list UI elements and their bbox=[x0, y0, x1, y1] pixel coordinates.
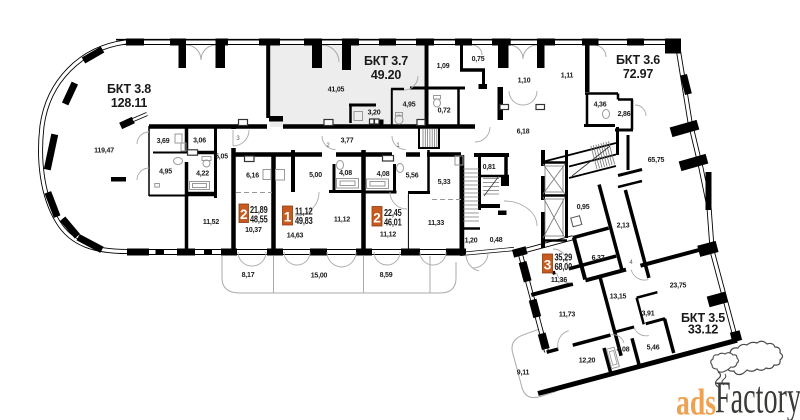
svg-text:49.20: 49.20 bbox=[371, 68, 402, 82]
svg-text:48,55: 48,55 bbox=[250, 213, 268, 225]
svg-text:9,11: 9,11 bbox=[517, 370, 530, 377]
svg-text:3,91: 3,91 bbox=[642, 311, 655, 318]
svg-text:0,75: 0,75 bbox=[472, 56, 485, 63]
svg-text:5,46: 5,46 bbox=[647, 345, 660, 352]
svg-text:11,12: 11,12 bbox=[380, 232, 396, 239]
svg-text:6,37: 6,37 bbox=[592, 255, 605, 262]
svg-text:0,72: 0,72 bbox=[438, 108, 451, 115]
svg-text:8,59: 8,59 bbox=[380, 272, 393, 279]
svg-text:3,69: 3,69 bbox=[157, 138, 170, 145]
svg-text:72.97: 72.97 bbox=[623, 67, 654, 81]
svg-text:1,10: 1,10 bbox=[518, 78, 531, 85]
svg-text:БКТ 3.6: БКТ 3.6 bbox=[616, 53, 660, 67]
svg-text:4,08: 4,08 bbox=[377, 171, 390, 178]
svg-text:4,22: 4,22 bbox=[196, 170, 209, 177]
svg-text:2,13: 2,13 bbox=[617, 223, 630, 230]
svg-text:1,11: 1,11 bbox=[561, 73, 574, 80]
svg-text:128.11: 128.11 bbox=[111, 96, 148, 110]
svg-text:4,08: 4,08 bbox=[339, 170, 352, 177]
svg-text:41,05: 41,05 bbox=[328, 87, 345, 94]
svg-text:6,18: 6,18 bbox=[517, 129, 530, 136]
svg-text:3: 3 bbox=[544, 258, 552, 273]
svg-text:15,00: 15,00 bbox=[311, 273, 328, 280]
svg-text:3,20: 3,20 bbox=[368, 110, 381, 117]
svg-text:11,52: 11,52 bbox=[203, 219, 219, 226]
svg-text:0,81: 0,81 bbox=[483, 164, 496, 171]
svg-text:119,47: 119,47 bbox=[94, 148, 114, 155]
svg-text:11,33: 11,33 bbox=[428, 220, 444, 227]
svg-text:4,95: 4,95 bbox=[159, 169, 172, 176]
svg-text:БКТ 3.8: БКТ 3.8 bbox=[107, 82, 151, 96]
svg-text:БКТ 3.7: БКТ 3.7 bbox=[364, 54, 408, 68]
svg-text:33.12: 33.12 bbox=[688, 323, 719, 337]
svg-text:14,63: 14,63 bbox=[287, 233, 304, 240]
svg-text:11,12: 11,12 bbox=[334, 217, 350, 224]
svg-text:23,75: 23,75 bbox=[670, 283, 687, 290]
svg-text:0,48: 0,48 bbox=[490, 237, 503, 244]
svg-text:8,17: 8,17 bbox=[242, 272, 255, 279]
svg-text:1,20: 1,20 bbox=[465, 238, 478, 245]
svg-text:11,36: 11,36 bbox=[551, 277, 567, 284]
svg-text:12,20: 12,20 bbox=[579, 358, 596, 365]
svg-text:ads: ads bbox=[676, 383, 716, 420]
svg-text:5,56: 5,56 bbox=[406, 173, 419, 180]
svg-text:46,01: 46,01 bbox=[384, 217, 402, 229]
svg-text:11,73: 11,73 bbox=[559, 312, 575, 319]
svg-text:2,86: 2,86 bbox=[618, 111, 631, 118]
svg-text:2: 2 bbox=[240, 207, 248, 222]
svg-text:49,83: 49,83 bbox=[295, 215, 313, 227]
svg-text:65,75: 65,75 bbox=[648, 157, 665, 164]
svg-text:10,37: 10,37 bbox=[245, 227, 262, 234]
svg-text:6,16: 6,16 bbox=[246, 173, 259, 180]
svg-text:4,95: 4,95 bbox=[403, 102, 416, 109]
svg-text:3,06: 3,06 bbox=[193, 138, 206, 145]
svg-text:5,00: 5,00 bbox=[309, 172, 322, 179]
svg-text:1,09: 1,09 bbox=[437, 63, 450, 70]
svg-text:13,15: 13,15 bbox=[610, 294, 627, 301]
svg-text:5,05: 5,05 bbox=[215, 154, 228, 161]
svg-text:5,33: 5,33 bbox=[438, 179, 451, 186]
svg-text:4,36: 4,36 bbox=[594, 102, 607, 109]
svg-text:0,95: 0,95 bbox=[577, 204, 590, 211]
svg-text:68,00: 68,00 bbox=[555, 261, 573, 273]
svg-text:2: 2 bbox=[373, 211, 381, 226]
svg-text:Factory: Factory bbox=[715, 373, 800, 420]
svg-text:4,08: 4,08 bbox=[617, 347, 630, 354]
svg-text:3,77: 3,77 bbox=[341, 138, 354, 145]
svg-text:1: 1 bbox=[284, 210, 292, 225]
